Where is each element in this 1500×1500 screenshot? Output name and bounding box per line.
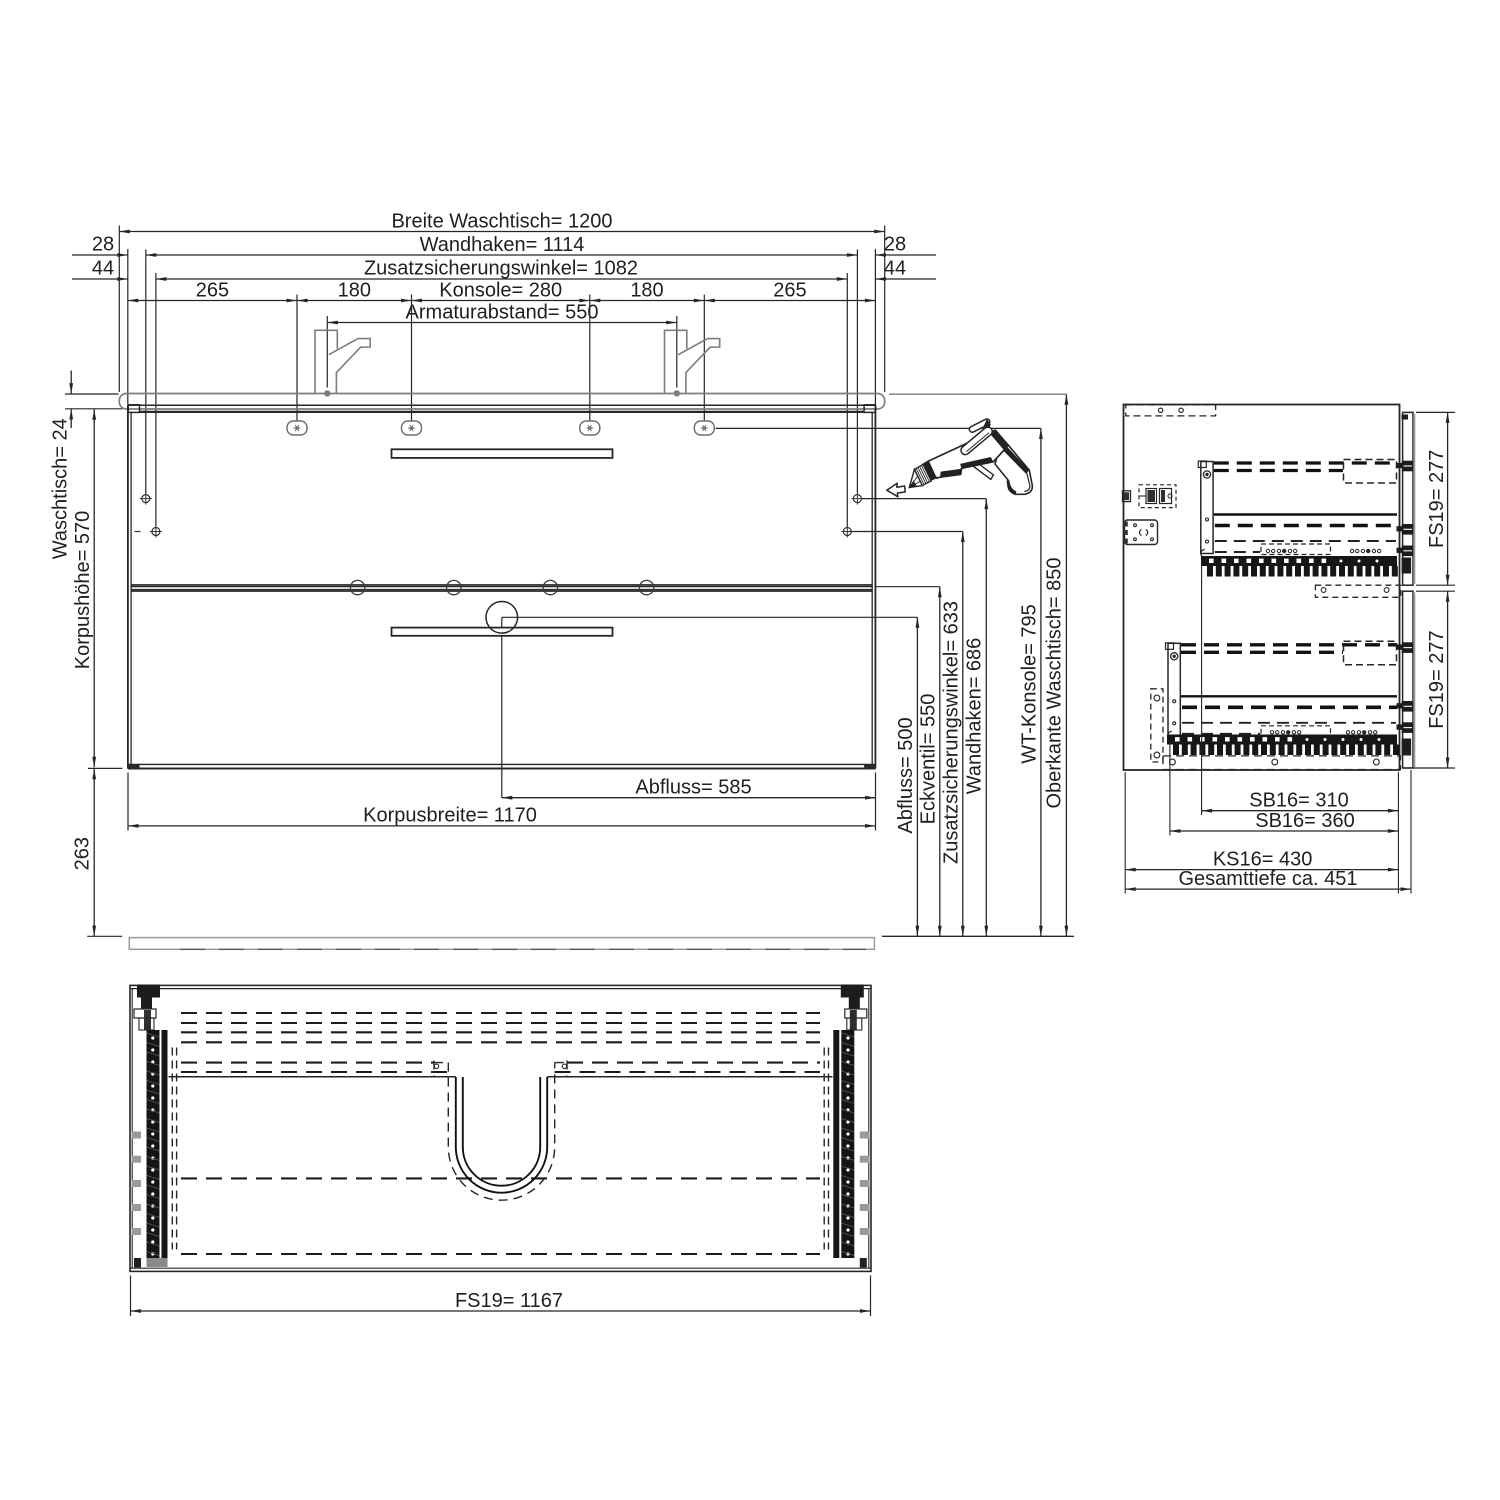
- svg-text:28: 28: [884, 234, 906, 256]
- svg-text:Abfluss= 585: Abfluss= 585: [635, 777, 751, 799]
- svg-text:Korpusbreite= 1170: Korpusbreite= 1170: [363, 805, 537, 827]
- svg-text:Konsole= 280: Konsole= 280: [439, 279, 562, 301]
- svg-text:FS19= 1167: FS19= 1167: [455, 1290, 563, 1312]
- svg-text:FS19= 277: FS19= 277: [1426, 450, 1448, 548]
- svg-text:28: 28: [92, 234, 114, 256]
- svg-text:Abfluss= 500: Abfluss= 500: [895, 717, 917, 833]
- svg-text:Breite Waschtisch= 1200: Breite Waschtisch= 1200: [391, 210, 612, 232]
- svg-text:SB16= 360: SB16= 360: [1255, 810, 1355, 832]
- svg-text:Korpushöhe= 570: Korpushöhe= 570: [72, 511, 94, 669]
- svg-text:WT-Konsole= 795: WT-Konsole= 795: [1019, 604, 1041, 764]
- svg-text:Oberkante Waschtisch= 850: Oberkante Waschtisch= 850: [1044, 557, 1066, 808]
- svg-text:180: 180: [338, 279, 371, 301]
- svg-text:265: 265: [196, 279, 229, 301]
- svg-text:Wandhaken= 1114: Wandhaken= 1114: [420, 234, 585, 256]
- svg-text:Eckventil= 550: Eckventil= 550: [918, 694, 940, 825]
- svg-text:SB16= 310: SB16= 310: [1249, 790, 1349, 812]
- svg-text:44: 44: [92, 258, 114, 280]
- svg-text:Armaturabstand= 550: Armaturabstand= 550: [406, 301, 599, 323]
- svg-text:44: 44: [884, 258, 906, 280]
- svg-text:Gesamttiefe ca. 451: Gesamttiefe ca. 451: [1179, 868, 1358, 890]
- svg-text:265: 265: [773, 279, 806, 301]
- svg-text:180: 180: [630, 279, 663, 301]
- svg-text:Zusatzsicherungswinkel= 1082: Zusatzsicherungswinkel= 1082: [364, 258, 638, 280]
- svg-text:Wandhaken= 686: Wandhaken= 686: [964, 638, 986, 795]
- svg-text:Waschtisch= 24: Waschtisch= 24: [50, 418, 72, 559]
- svg-text:263: 263: [72, 837, 94, 870]
- svg-text:Zusatzsicherungswinkel= 633: Zusatzsicherungswinkel= 633: [941, 601, 963, 864]
- svg-text:FS19= 277: FS19= 277: [1426, 630, 1448, 728]
